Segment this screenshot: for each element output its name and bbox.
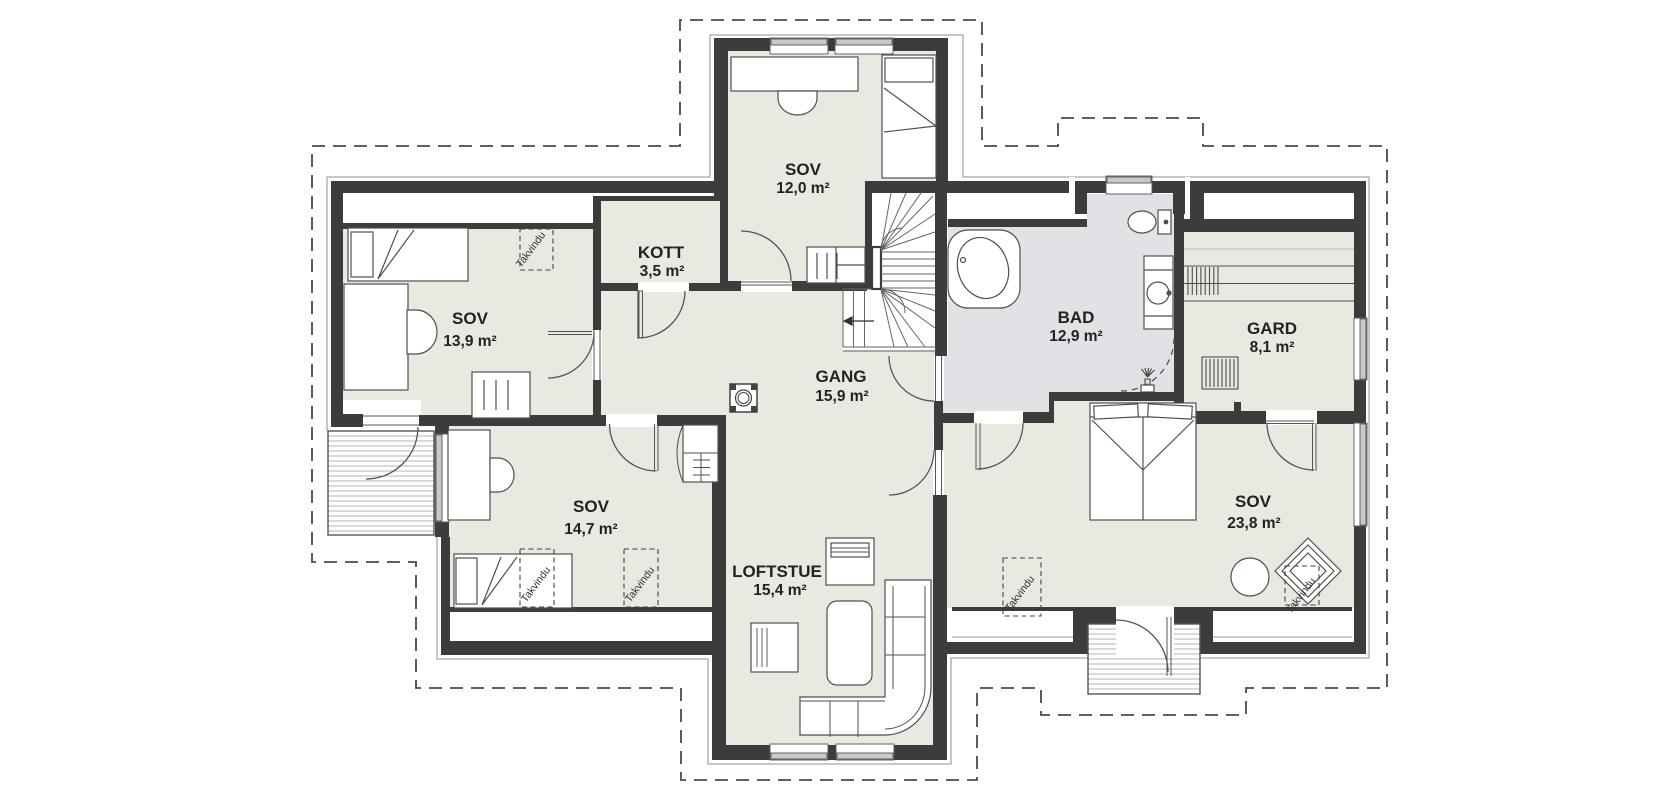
svg-text:15,4 m²: 15,4 m² (753, 582, 806, 599)
svg-text:LOFTSTUE: LOFTSTUE (732, 562, 822, 581)
svg-text:KOTT: KOTT (638, 243, 685, 262)
svg-text:14,7 m²: 14,7 m² (564, 521, 617, 538)
svg-text:GANG: GANG (816, 367, 867, 386)
svg-text:23,8 m²: 23,8 m² (1227, 515, 1280, 532)
svg-text:GARD: GARD (1247, 319, 1297, 338)
svg-text:BAD: BAD (1058, 308, 1095, 327)
svg-text:SOV: SOV (573, 497, 610, 516)
svg-text:12,0 m²: 12,0 m² (776, 180, 829, 197)
svg-text:SOV: SOV (1235, 492, 1272, 511)
svg-text:12,9 m²: 12,9 m² (1049, 328, 1102, 345)
svg-text:8,1 m²: 8,1 m² (1250, 339, 1295, 356)
svg-text:SOV: SOV (785, 160, 822, 179)
svg-text:13,9 m²: 13,9 m² (443, 333, 496, 350)
svg-text:3,5 m²: 3,5 m² (640, 263, 685, 280)
svg-text:SOV: SOV (452, 309, 489, 328)
svg-text:15,9 m²: 15,9 m² (815, 388, 868, 405)
